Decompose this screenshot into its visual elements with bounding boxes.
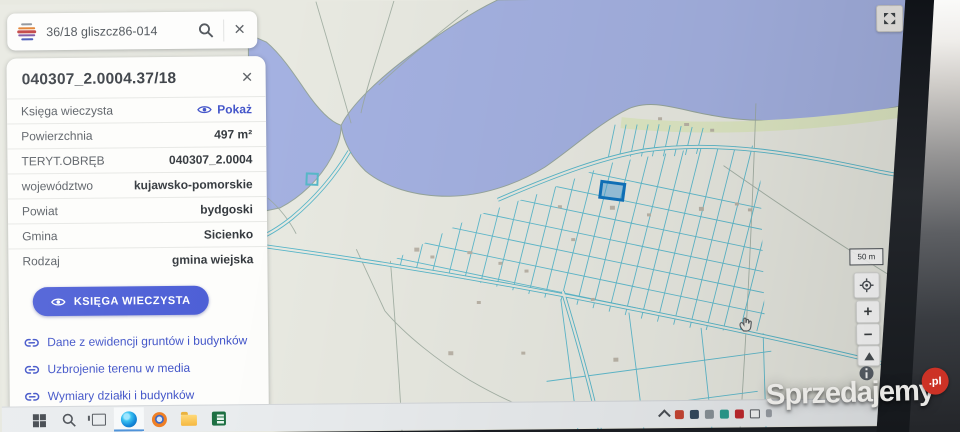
pokaz-link[interactable]: Pokaż <box>197 102 252 117</box>
panel-row: Powiat bydgoski <box>8 197 267 224</box>
panel-row: TERYT.OBRĘB 040307_2.0004 <box>7 147 266 174</box>
tray-expand-chevron-icon[interactable] <box>658 409 671 422</box>
zoom-out-button[interactable]: − <box>856 323 880 345</box>
edge-icon <box>121 411 137 427</box>
fullscreen-button[interactable] <box>876 5 903 32</box>
excel-icon <box>212 411 226 425</box>
hand-cursor-icon <box>736 314 754 337</box>
watermark-text: Sprzedajemy <box>766 375 935 412</box>
ksiega-wieczysta-button[interactable]: KSIĘGA WIECZYSTA <box>33 286 209 317</box>
geoportal-logo-icon <box>17 23 36 40</box>
watermark: Sprzedajemy .pl <box>766 375 935 413</box>
panel-row-ksiega: Księga wieczysta Pokaż <box>7 97 266 124</box>
windows-logo-icon <box>32 414 45 427</box>
panel-row: Gmina Sicienko <box>8 222 267 249</box>
link-uzbrojenie[interactable]: Uzbrojenie terenu w media <box>9 353 268 382</box>
panel-row: Rodzaj gmina wiejska <box>8 247 267 273</box>
folder-icon <box>181 415 197 426</box>
link-icon <box>24 338 39 347</box>
panel-close-icon[interactable]: × <box>241 67 252 89</box>
search-bar: × <box>7 11 257 50</box>
search-icon <box>61 412 76 427</box>
map-scale-indicator: 50 m <box>849 248 883 265</box>
task-view-button[interactable] <box>84 408 114 432</box>
edge-browser-button[interactable] <box>114 407 144 431</box>
photo-of-laptop-screen: × 040307_2.0004.37/18 × Księga wieczysta <box>0 0 960 432</box>
search-close-icon[interactable]: × <box>230 20 249 39</box>
parcel-info-panel: 040307_2.0004.37/18 × Księga wieczysta P… <box>6 56 269 425</box>
firefox-icon <box>151 412 166 427</box>
up-triangle-icon <box>864 352 874 360</box>
link-ewidencja[interactable]: Dane z ewidencji gruntów i budynków <box>9 326 268 355</box>
firefox-browser-button[interactable] <box>144 407 174 431</box>
eye-icon <box>51 296 66 306</box>
eye-icon <box>197 105 212 115</box>
search-input[interactable] <box>44 22 195 39</box>
task-view-icon <box>92 414 106 426</box>
taskbar-search-button[interactable] <box>54 408 84 432</box>
selected-parcel[interactable] <box>600 181 625 200</box>
tray-app-icon[interactable] <box>705 409 714 418</box>
start-button[interactable] <box>24 408 54 432</box>
tray-app-icon[interactable] <box>720 409 729 418</box>
tray-app-icon[interactable] <box>735 409 744 418</box>
zoom-in-button[interactable]: + <box>856 300 880 323</box>
link-icon <box>25 392 40 401</box>
panel-row: Powierzchnia 497 m² <box>7 122 266 149</box>
panel-row: województwo kujawsko-pomorskie <box>8 172 267 199</box>
laptop-screen: × 040307_2.0004.37/18 × Księga wieczysta <box>0 0 960 432</box>
link-icon <box>24 365 39 374</box>
geolocate-button[interactable] <box>854 272 880 298</box>
north-arrow-button[interactable] <box>857 345 880 366</box>
tray-shield-icon[interactable] <box>675 410 684 419</box>
search-divider <box>223 19 224 41</box>
search-icon[interactable] <box>195 22 217 38</box>
geolocate-icon <box>860 278 874 292</box>
file-explorer-button[interactable] <box>174 407 204 431</box>
excel-button[interactable] <box>204 406 234 430</box>
parcel-id-title: 040307_2.0004.37/18 <box>22 70 177 88</box>
fullscreen-icon <box>883 12 896 25</box>
tray-chat-icon[interactable] <box>750 409 760 418</box>
tray-app-icon[interactable] <box>690 409 699 418</box>
